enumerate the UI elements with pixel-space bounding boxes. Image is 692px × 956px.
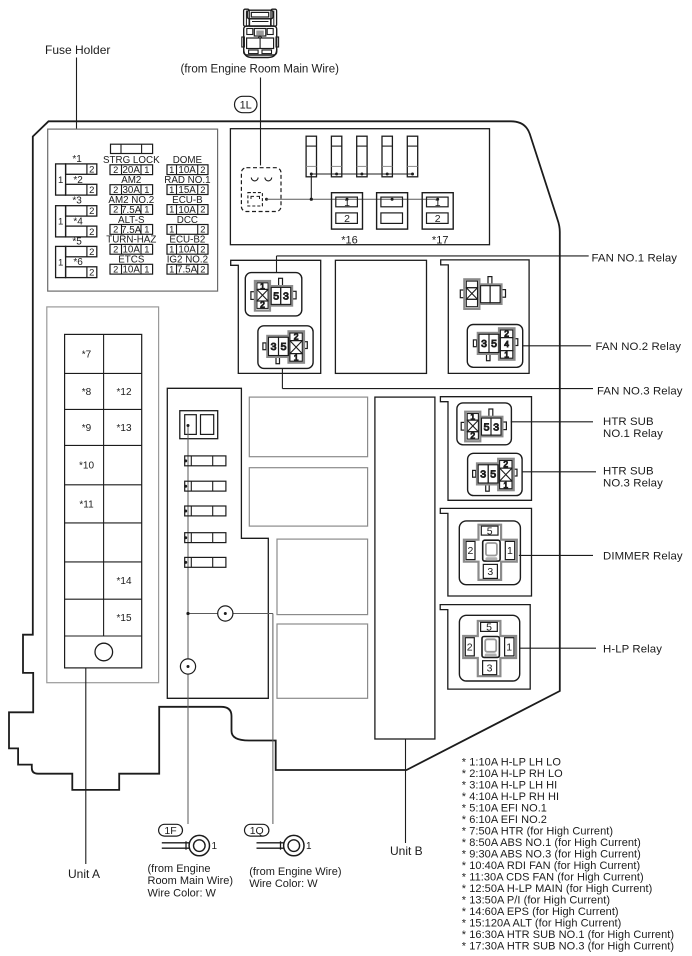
svg-text:2: 2 [260, 300, 265, 310]
svg-text:*17: *17 [432, 234, 449, 246]
svg-text:1: 1 [169, 185, 174, 195]
svg-text:FAN NO.3 Relay: FAN NO.3 Relay [597, 385, 683, 397]
svg-text:1: 1 [169, 205, 174, 215]
svg-text:1: 1 [58, 217, 63, 228]
svg-text:H-LP Relay: H-LP Relay [603, 643, 662, 655]
svg-text:(from Engine Wire): (from Engine Wire) [249, 866, 341, 878]
svg-text:2: 2 [89, 227, 94, 238]
svg-text:NO.1 Relay: NO.1 Relay [603, 428, 663, 440]
svg-text:* 2:10A H-LP RH LO: * 2:10A H-LP RH LO [462, 768, 563, 780]
svg-text:2: 2 [200, 225, 205, 235]
svg-text:* 17:30A HTR SUB NO.3 (for Hig: * 17:30A HTR SUB NO.3 (for High Current) [462, 940, 674, 952]
svg-text:*8: *8 [82, 387, 92, 398]
svg-text:1: 1 [144, 225, 149, 235]
svg-text:1: 1 [294, 352, 299, 362]
svg-text:*5: *5 [72, 236, 82, 247]
svg-text:*13: *13 [116, 423, 131, 434]
svg-text:*2: *2 [73, 175, 83, 186]
svg-text:1: 1 [506, 641, 512, 653]
svg-text:2: 2 [470, 430, 475, 440]
svg-text:*11: *11 [79, 499, 94, 510]
svg-text:1F: 1F [164, 825, 176, 837]
svg-text:5: 5 [486, 622, 492, 634]
svg-text:3: 3 [271, 341, 277, 353]
svg-text:1Q: 1Q [250, 825, 264, 837]
svg-text:* 13:50A P/I (for High Current: * 13:50A P/I (for High Current) [462, 894, 610, 906]
svg-text:1: 1 [306, 841, 312, 852]
svg-text:2: 2 [467, 641, 473, 653]
svg-text:5: 5 [491, 338, 497, 350]
svg-text:* 15:120A ALT (for High Curren: * 15:120A ALT (for High Current) [462, 917, 622, 929]
svg-text:2: 2 [435, 213, 441, 225]
svg-text:5: 5 [487, 525, 493, 537]
svg-text:* 14:60A EPS (for High Current: * 14:60A EPS (for High Current) [462, 906, 619, 918]
svg-text:* 8:50A ABS NO.1 (for High Cur: * 8:50A ABS NO.1 (for High Current) [462, 837, 641, 849]
svg-text:*6: *6 [73, 257, 83, 268]
svg-text:* 11:30A CDS FAN (for High Cur: * 11:30A CDS FAN (for High Current) [462, 871, 644, 883]
svg-text:2: 2 [200, 264, 205, 274]
svg-text:FAN NO.1 Relay: FAN NO.1 Relay [592, 252, 678, 264]
svg-text:Room Main Wire): Room Main Wire) [148, 875, 234, 887]
svg-text:3: 3 [493, 421, 499, 433]
svg-text:2: 2 [344, 213, 350, 225]
svg-text:2: 2 [89, 247, 94, 258]
svg-text:* 16:30A HTR SUB NO.1 (for Hig: * 16:30A HTR SUB NO.1 (for High Current) [462, 929, 674, 941]
svg-text:2: 2 [200, 245, 205, 255]
svg-text:*12: *12 [116, 387, 131, 398]
svg-text:Wire Color: W: Wire Color: W [249, 878, 318, 890]
svg-text:Fuse Holder: Fuse Holder [45, 43, 110, 57]
svg-text:1: 1 [169, 264, 174, 274]
svg-text:4: 4 [504, 339, 509, 349]
svg-text:5: 5 [490, 469, 496, 481]
svg-text:Wire Color: W: Wire Color: W [148, 887, 217, 899]
svg-text:* 7:50A HTR (for High Current): * 7:50A HTR (for High Current) [462, 825, 613, 837]
svg-text:5: 5 [484, 421, 490, 433]
svg-text:* 12:50A H-LP MAIN (for High C: * 12:50A H-LP MAIN (for High Current) [462, 883, 653, 895]
svg-text:NO.3 Relay: NO.3 Relay [603, 477, 663, 489]
svg-text:1: 1 [260, 281, 265, 291]
svg-text:2: 2 [89, 164, 94, 175]
svg-text:*3: *3 [72, 196, 82, 207]
svg-text:1: 1 [144, 264, 149, 274]
svg-text:HTR SUB: HTR SUB [603, 416, 654, 428]
svg-text:2: 2 [200, 165, 205, 175]
svg-text:* 1:10A H-LP LH LO: * 1:10A H-LP LH LO [462, 756, 562, 768]
svg-text:1L: 1L [240, 99, 252, 111]
svg-text:1: 1 [212, 841, 218, 852]
svg-text:1: 1 [507, 545, 513, 557]
svg-text:2: 2 [113, 185, 118, 195]
svg-text:*9: *9 [82, 423, 92, 434]
svg-text:* 5:10A EFI NO.1: * 5:10A EFI NO.1 [462, 802, 547, 814]
svg-text:1: 1 [144, 165, 149, 175]
svg-text:5: 5 [281, 341, 287, 353]
svg-text:2: 2 [294, 332, 299, 342]
svg-text:*16: *16 [341, 234, 358, 246]
svg-text:*1: *1 [72, 154, 82, 165]
svg-text:3: 3 [283, 291, 289, 303]
svg-text:3: 3 [481, 338, 487, 350]
svg-text:3: 3 [487, 566, 493, 578]
svg-text:2: 2 [200, 205, 205, 215]
svg-text:FAN NO.2 Relay: FAN NO.2 Relay [596, 341, 682, 353]
svg-text:2: 2 [200, 185, 205, 195]
svg-text:2: 2 [113, 245, 118, 255]
svg-text:HTR SUB: HTR SUB [603, 465, 654, 477]
svg-text:2: 2 [113, 264, 118, 274]
svg-text:3: 3 [480, 469, 486, 481]
svg-text:2: 2 [503, 459, 508, 469]
svg-text:5: 5 [273, 291, 279, 303]
svg-text:1: 1 [169, 245, 174, 255]
svg-text:1: 1 [144, 245, 149, 255]
svg-text:1: 1 [169, 165, 174, 175]
svg-text:2: 2 [89, 185, 94, 196]
svg-text:2: 2 [467, 545, 473, 557]
svg-text:Unit B: Unit B [390, 844, 423, 858]
svg-text:7.5A: 7.5A [177, 265, 198, 276]
svg-text:*7: *7 [82, 349, 92, 360]
svg-text:* 9:30A ABS NO.3 (for High Cur: * 9:30A ABS NO.3 (for High Current) [462, 848, 641, 860]
svg-text:10A: 10A [122, 265, 140, 276]
svg-text:2: 2 [504, 329, 509, 339]
svg-text:(from Engine Room Main Wire): (from Engine Room Main Wire) [181, 64, 340, 76]
svg-text:*10: *10 [79, 461, 94, 472]
svg-text:* 3:10A H-LP LH HI: * 3:10A H-LP LH HI [462, 779, 557, 791]
svg-text:* 4:10A H-LP RH HI: * 4:10A H-LP RH HI [462, 791, 559, 803]
svg-text:1: 1 [144, 205, 149, 215]
svg-text:1: 1 [504, 349, 509, 359]
svg-text:2: 2 [113, 165, 118, 175]
svg-text:*15: *15 [116, 613, 131, 624]
svg-text:1: 1 [58, 175, 63, 186]
svg-text:1: 1 [144, 185, 149, 195]
svg-text:(from Engine: (from Engine [148, 863, 211, 875]
svg-text:2: 2 [89, 206, 94, 217]
svg-text:Unit A: Unit A [68, 867, 100, 881]
svg-text:1: 1 [58, 257, 63, 268]
svg-text:1: 1 [503, 480, 508, 490]
svg-text:2: 2 [89, 268, 94, 279]
svg-text:1: 1 [169, 225, 174, 235]
svg-text:* 10:40A RDI FAN (for High Cur: * 10:40A RDI FAN (for High Current) [462, 860, 640, 872]
svg-text:2: 2 [113, 205, 118, 215]
svg-text:*4: *4 [73, 217, 83, 228]
svg-text:2: 2 [113, 225, 118, 235]
svg-text:* 6:10A EFI NO.2: * 6:10A EFI NO.2 [462, 814, 547, 826]
svg-text:DIMMER Relay: DIMMER Relay [603, 551, 683, 563]
svg-text:3: 3 [487, 662, 493, 674]
svg-text:1: 1 [470, 412, 475, 422]
svg-text:*14: *14 [116, 576, 131, 587]
